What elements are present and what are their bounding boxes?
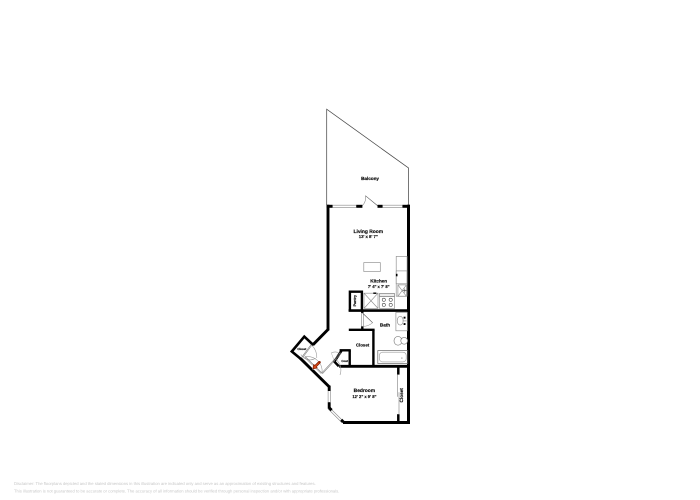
svg-text:Coat: Coat bbox=[341, 359, 347, 363]
svg-text:Closet: Closet bbox=[297, 347, 306, 351]
svg-text:Balcony: Balcony bbox=[361, 176, 379, 181]
svg-text:Pantry: Pantry bbox=[353, 294, 357, 306]
svg-text:Bath: Bath bbox=[380, 322, 390, 327]
svg-text:Closet: Closet bbox=[399, 388, 404, 403]
svg-text:This illustration is not guara: This illustration is not guaranteed to b… bbox=[14, 489, 339, 494]
svg-text:12' 2" x 9' 8": 12' 2" x 9' 8" bbox=[352, 394, 376, 399]
svg-text:Disclaimer: The floorplans dep: Disclaimer: The floorplans depicted and … bbox=[14, 481, 316, 486]
svg-text:Closet: Closet bbox=[356, 343, 370, 348]
svg-text:7' 4" x 7' 8": 7' 4" x 7' 8" bbox=[368, 284, 390, 289]
svg-text:13' x 8' 7": 13' x 8' 7" bbox=[359, 234, 378, 239]
